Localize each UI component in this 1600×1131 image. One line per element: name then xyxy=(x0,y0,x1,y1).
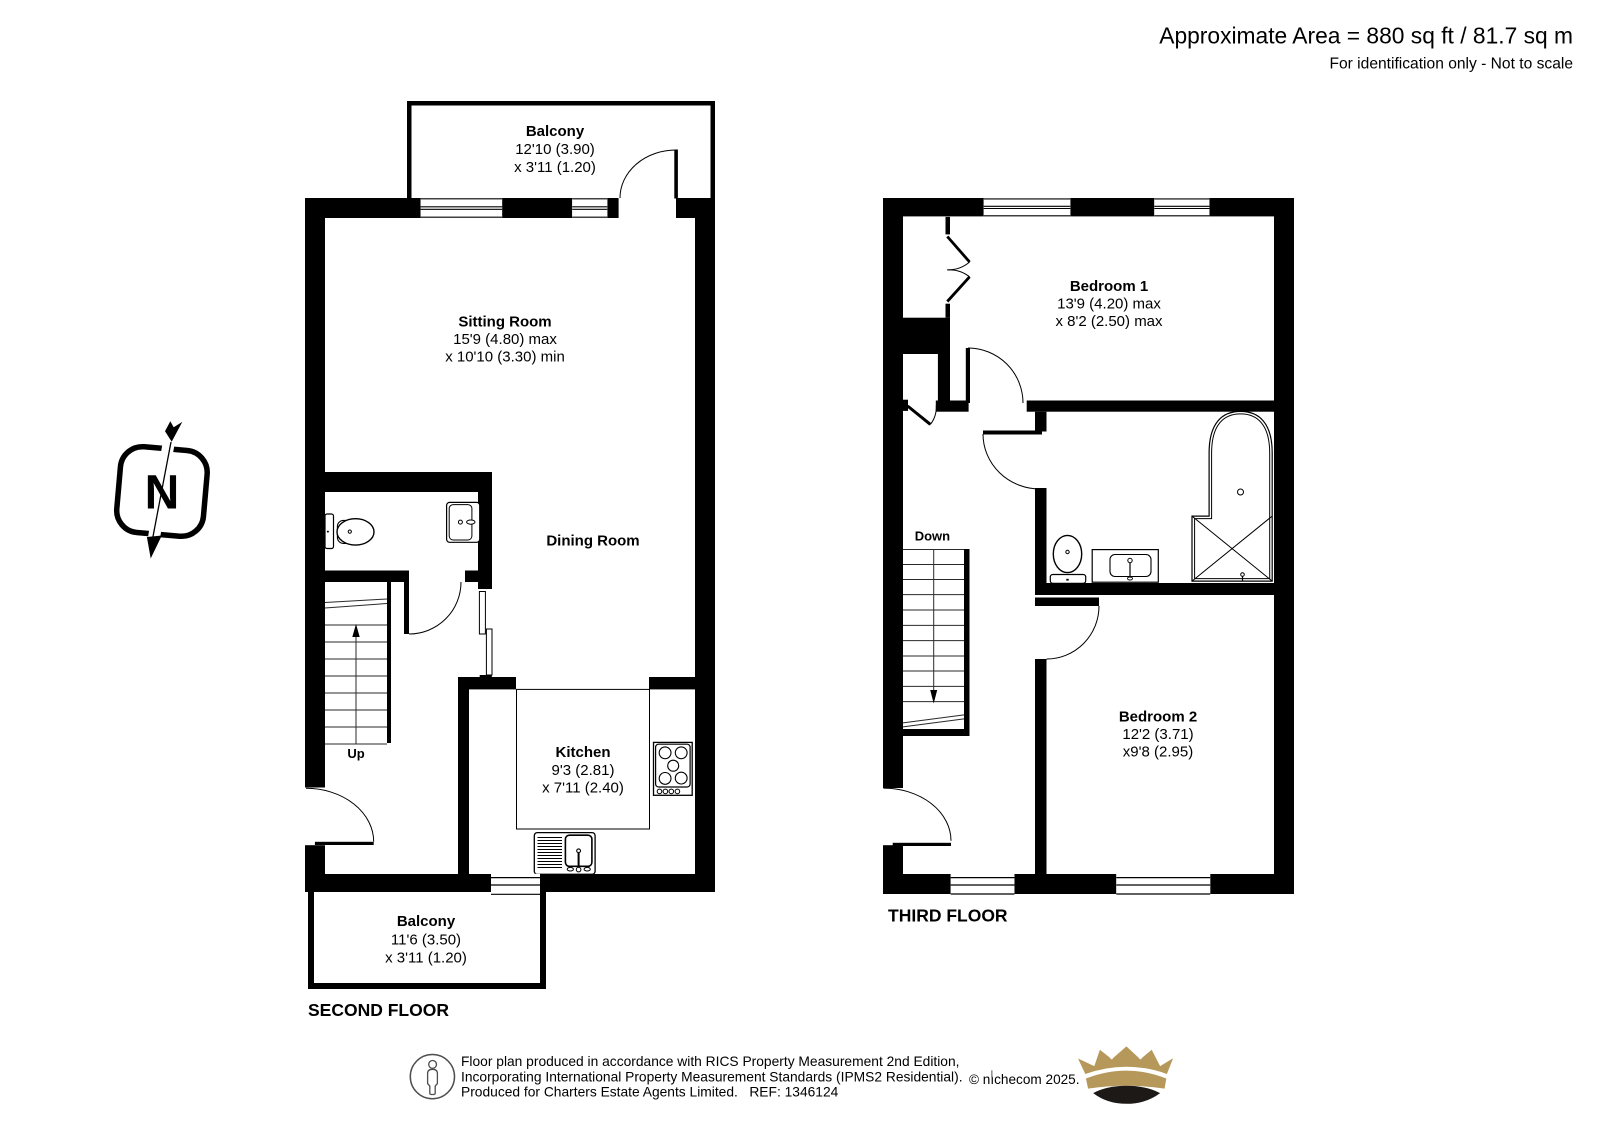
svg-text:11'6 (3.50): 11'6 (3.50) xyxy=(391,931,461,948)
svg-text:Down: Down xyxy=(915,529,950,544)
svg-text:x 10'10 (3.30) min: x 10'10 (3.30) min xyxy=(445,349,565,366)
svg-text:© nıchecom 2025.: © nıchecom 2025. xyxy=(969,1072,1080,1087)
svg-text:Kitchen: Kitchen xyxy=(555,744,610,761)
svg-text:THIRD FLOOR: THIRD FLOOR xyxy=(888,906,1008,926)
svg-text:N: N xyxy=(145,467,180,520)
svg-text:Floor plan produced in accorda: Floor plan produced in accordance with R… xyxy=(461,1054,959,1069)
svg-text:Dining Room: Dining Room xyxy=(546,533,639,550)
svg-text:SECOND FLOOR: SECOND FLOOR xyxy=(308,1000,449,1020)
svg-text:x 3'11 (1.20): x 3'11 (1.20) xyxy=(514,159,596,176)
svg-text:For identification only - Not: For identification only - Not to scale xyxy=(1329,56,1573,73)
svg-text:12'2 (3.71): 12'2 (3.71) xyxy=(1122,726,1193,743)
svg-text:12'10 (3.90): 12'10 (3.90) xyxy=(515,141,595,158)
svg-text:x 8'2 (2.50) max: x 8'2 (2.50) max xyxy=(1055,313,1163,330)
svg-text:x 3'11 (1.20): x 3'11 (1.20) xyxy=(385,950,467,967)
svg-text:15'9 (4.80) max: 15'9 (4.80) max xyxy=(453,331,557,348)
svg-text:Balcony: Balcony xyxy=(397,913,456,930)
svg-text:x 7'11 (2.40): x 7'11 (2.40) xyxy=(542,779,624,796)
svg-text:Produced for Charters Estate A: Produced for Charters Estate Agents Limi… xyxy=(461,1085,839,1100)
svg-text:Approximate Area = 880 sq ft /: Approximate Area = 880 sq ft / 81.7 sq m xyxy=(1159,23,1573,49)
svg-text:Bedroom 2: Bedroom 2 xyxy=(1119,709,1197,726)
svg-text:Up: Up xyxy=(347,746,364,761)
svg-text:13'9 (4.20) max: 13'9 (4.20) max xyxy=(1057,296,1161,313)
svg-text:Balcony: Balcony xyxy=(526,123,585,140)
svg-text:Incorporating International Pr: Incorporating International Property Mea… xyxy=(461,1069,963,1084)
svg-text:x9'8 (2.95): x9'8 (2.95) xyxy=(1123,744,1193,761)
svg-text:Sitting Room: Sitting Room xyxy=(458,314,551,331)
svg-text:9'3 (2.81): 9'3 (2.81) xyxy=(552,762,615,779)
svg-text:Bedroom 1: Bedroom 1 xyxy=(1070,278,1148,295)
